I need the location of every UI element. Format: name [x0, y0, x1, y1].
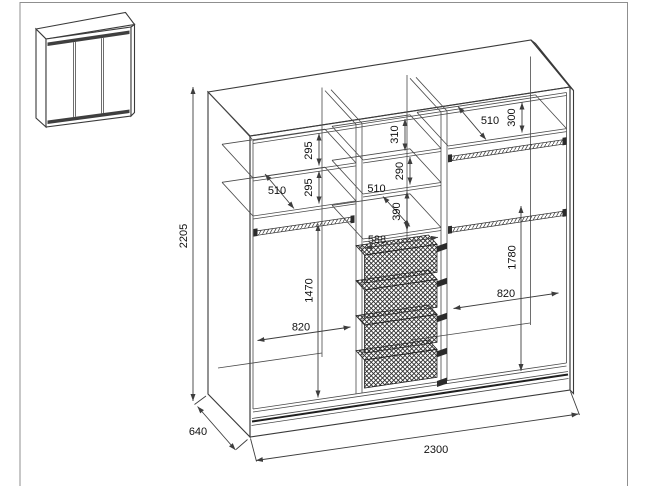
- dim-label-middle-top-gap: 310: [389, 125, 401, 143]
- hanging-rail-right-lower: [448, 209, 567, 234]
- shelf: [332, 149, 441, 197]
- wire-baskets: [356, 235, 447, 388]
- dim-label-right-top-gap: 300: [506, 108, 518, 126]
- dim-left-second-gap: 295: [303, 171, 319, 204]
- left-side-panel: [208, 92, 250, 437]
- dim-right-top-gap: 300: [506, 103, 522, 133]
- thumb-left-side-panel: [36, 29, 46, 127]
- dim-label-left-second-gap: 295: [303, 178, 315, 196]
- dim-middle-second-gap: 290: [394, 157, 410, 185]
- dim-left-hanging-drop: 1470: [304, 224, 319, 398]
- shelves-middle-section: [332, 115, 441, 242]
- thumb-right-side-sliver: [131, 25, 135, 117]
- wardrobe-main-drawing: 2205 640 2300 295 295: [178, 40, 580, 462]
- dim-right-width: 820: [454, 288, 559, 309]
- dim-left-shelf-depth: 510: [265, 174, 294, 209]
- hanging-rail-right-upper: [448, 137, 567, 162]
- wardrobe-dimension-drawing: 2205 640 2300 295 295: [0, 0, 648, 486]
- dim-middle-third-gap: 390: [391, 192, 407, 231]
- dim-label-overall-height: 2205: [178, 224, 190, 248]
- technical-drawing-page: 2205 640 2300 295 295: [0, 0, 648, 486]
- dim-label-left-shelf-depth: 510: [268, 185, 286, 197]
- shelf: [332, 115, 441, 163]
- dim-middle-top-gap: 310: [389, 119, 405, 151]
- dim-label-right-shelf-depth: 510: [481, 115, 499, 127]
- basket-runner-brackets: [437, 243, 447, 387]
- dim-left-top-gap: 295: [303, 134, 319, 166]
- dim-middle-shelf-depth: 510: [367, 183, 410, 227]
- hanging-rail-left: [254, 215, 355, 236]
- dim-label-overall-width: 2300: [424, 444, 448, 456]
- partition-left: [322, 88, 362, 394]
- dim-label-overall-depth: 640: [189, 426, 207, 438]
- dim-label-middle-second-gap: 290: [394, 162, 406, 180]
- dim-label-left-width: 820: [292, 322, 310, 334]
- dim-label-right-hanging-drop: 1780: [507, 245, 519, 269]
- dim-label-left-top-gap: 295: [303, 141, 315, 159]
- dim-label-left-hanging-drop: 1470: [304, 278, 316, 302]
- dim-overall-height: 2205: [178, 87, 193, 401]
- dim-label-middle-shelf-depth: 510: [367, 183, 385, 195]
- dim-left-width: 820: [258, 322, 351, 341]
- wardrobe-thumbnail: [36, 13, 135, 128]
- dim-label-middle-width: 588: [368, 234, 386, 246]
- dim-label-middle-third-gap: 390: [391, 202, 403, 220]
- dim-label-right-width: 820: [497, 288, 515, 300]
